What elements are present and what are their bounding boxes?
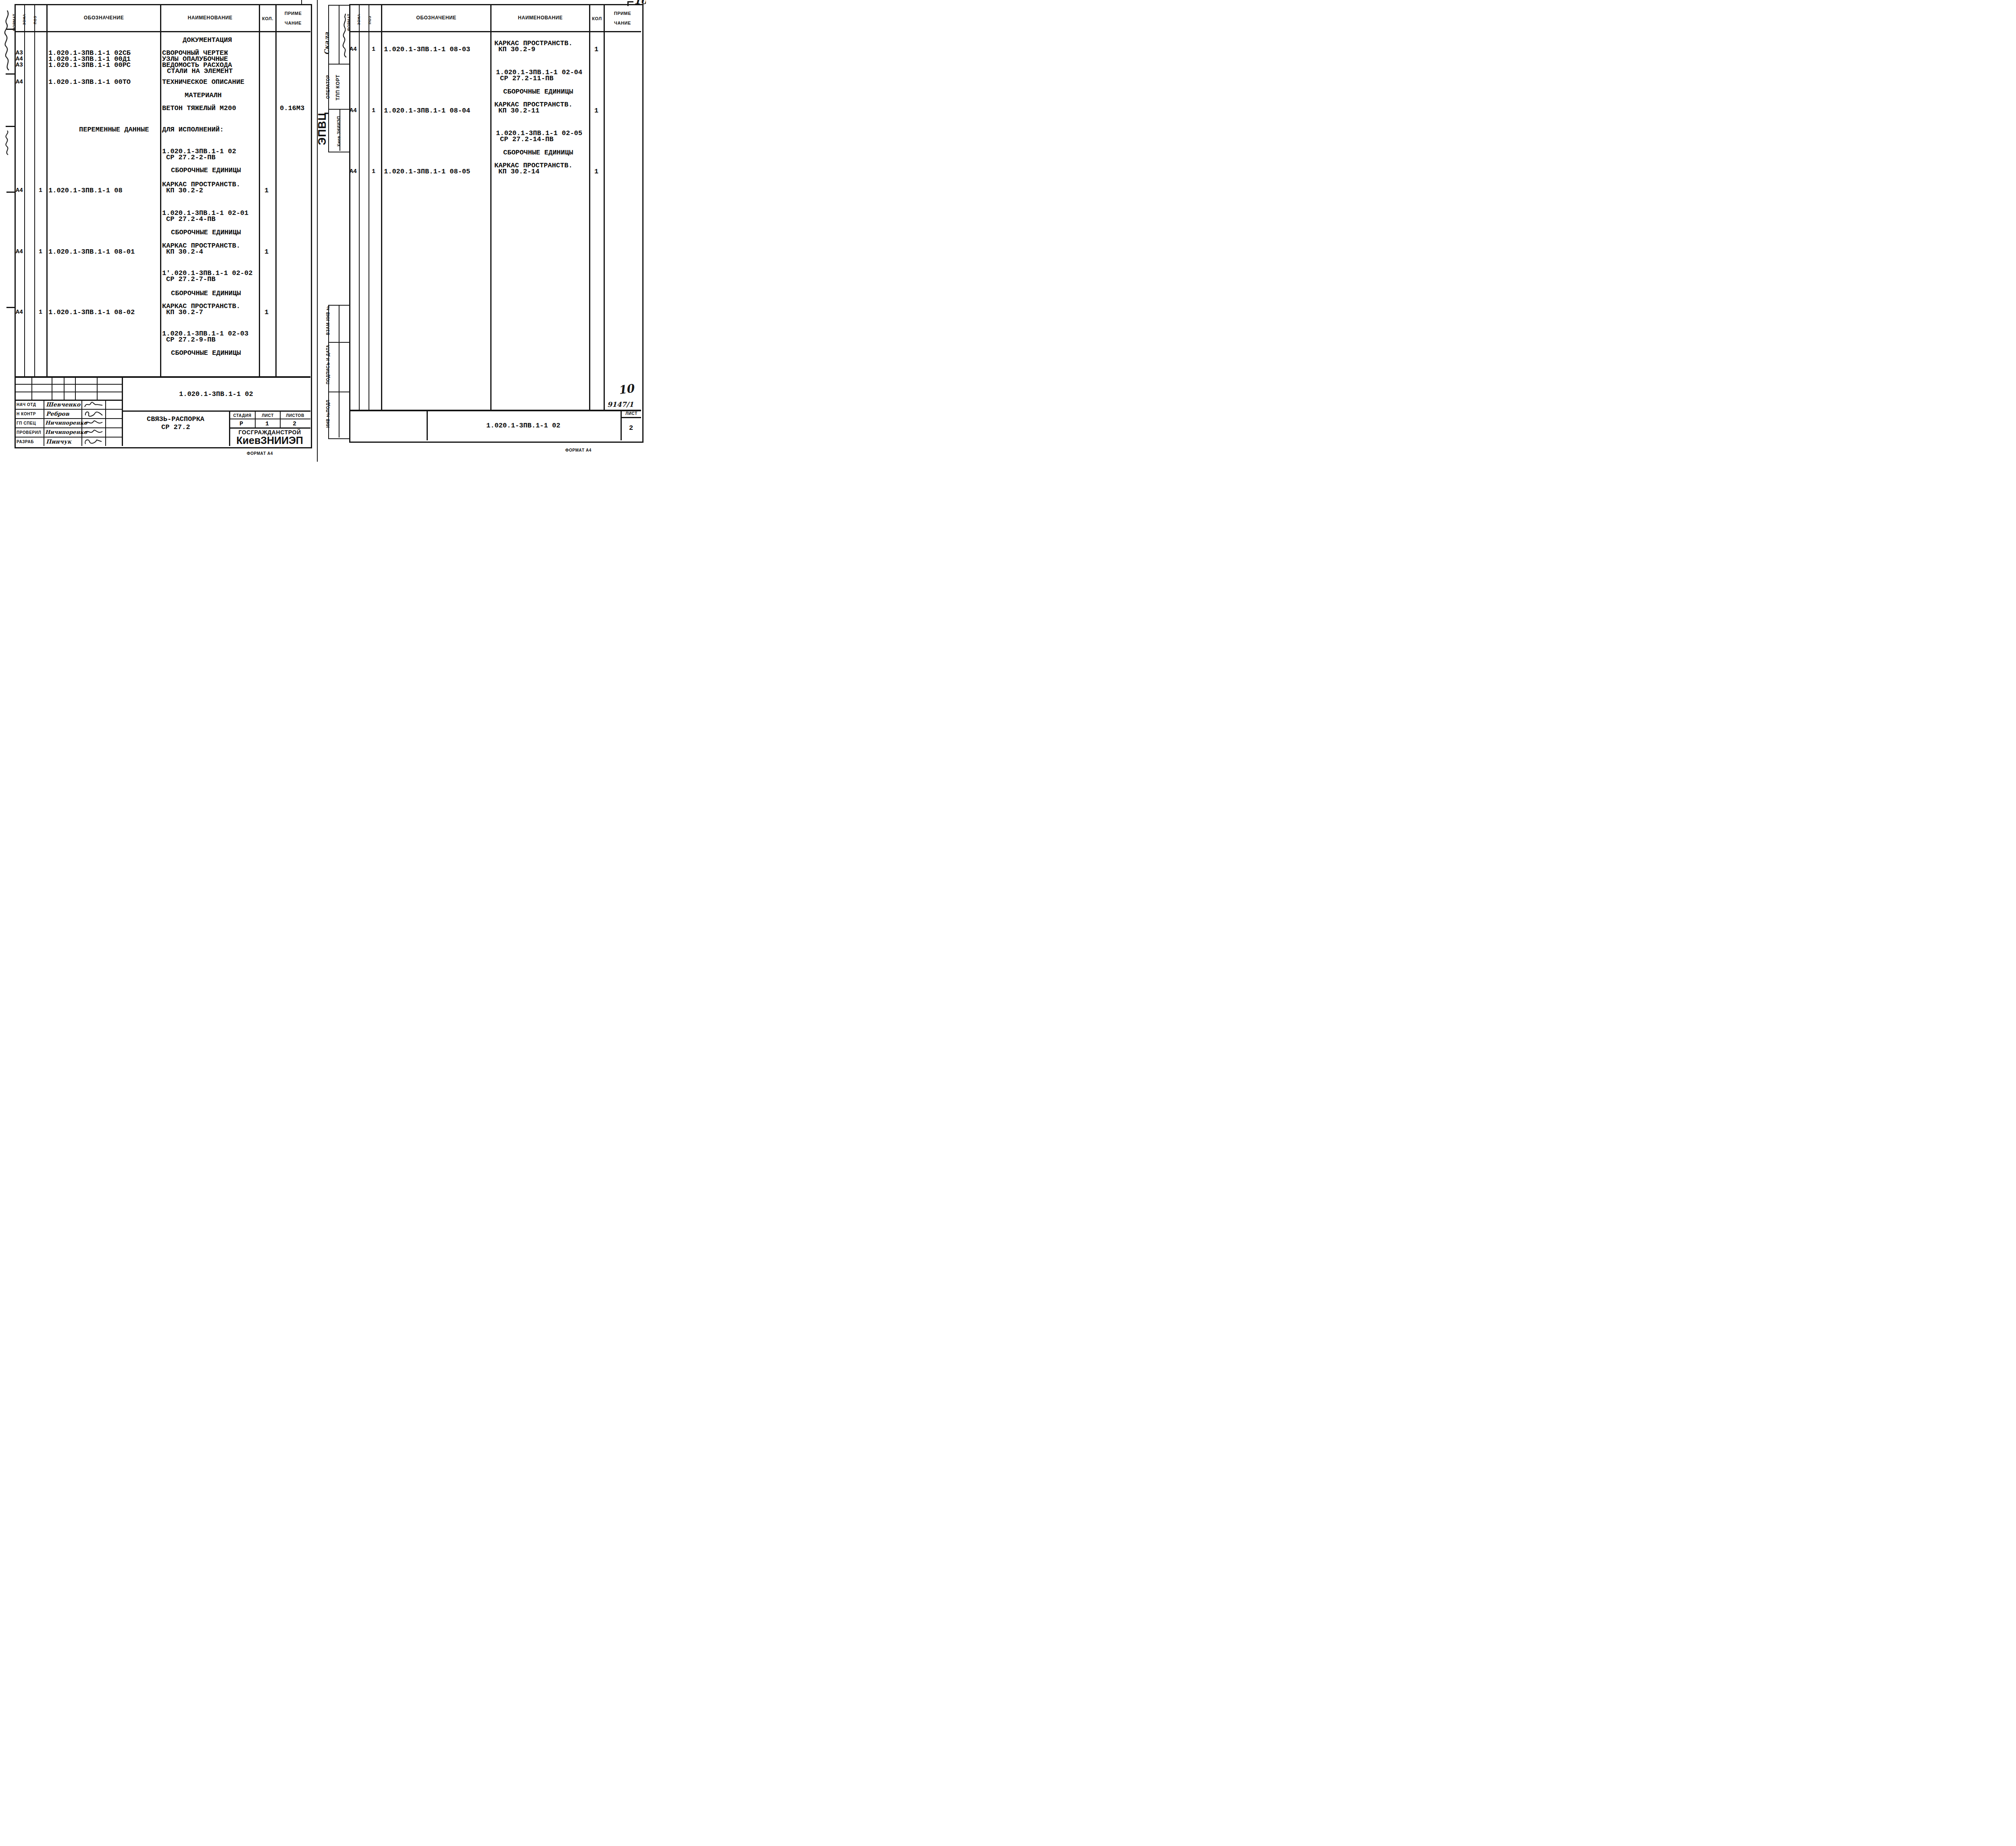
right-col-line — [604, 4, 605, 410]
qty-cell: 1 — [594, 108, 598, 114]
sig-name: Ничипоренко — [45, 420, 87, 426]
pos-cell: 1 — [372, 46, 375, 52]
left-content-bottom-line — [15, 376, 310, 378]
left-col-line — [46, 4, 48, 376]
sig-role: Н КОНТР — [17, 411, 36, 417]
designation-cell: 1.020.1-3ПВ.1-1 08-01 — [48, 249, 135, 255]
name-cell: ДЛЯ ИСПОЛНЕНИЙ: — [162, 127, 224, 133]
signature-stroke — [83, 410, 104, 418]
left-header-name: НАИМЕНОВАНИЕ — [161, 15, 259, 21]
name-cell: КП 30.2-4 — [166, 249, 203, 255]
designation-cell: ПЕРЕМЕННЫЕ ДАННЫЕ — [79, 127, 149, 133]
org-name-small: Киев ЗНИИЭП — [336, 116, 342, 146]
product-name: СВЯЗЬ-РАСПОРКА — [147, 416, 204, 422]
sig-role: ПРОВЕРИЛ — [17, 430, 41, 435]
note-cell: 0.16М3 — [280, 105, 304, 111]
page-fold-line — [317, 0, 318, 462]
format-cell: А4 — [16, 56, 23, 62]
left-header-line — [15, 31, 310, 32]
signature-stroke — [83, 419, 104, 427]
right-header-format: ФОРМАТ — [346, 14, 352, 31]
sheets-label: ЛИСТОВ — [281, 413, 310, 418]
left-format-label: ФОРМАТ А4 — [247, 451, 273, 456]
sidebar-box-inv — [328, 392, 351, 439]
sidebar-divider — [339, 305, 339, 342]
margin-tick — [6, 307, 15, 308]
right-col-line — [490, 4, 492, 410]
sidebar-divider — [339, 392, 339, 438]
right-header-designation: ОБОЗНАЧЕНИЕ — [382, 15, 490, 21]
format-cell: А4 — [350, 169, 357, 175]
qty-cell: 1 — [264, 309, 269, 315]
title-doc-number: 1.020.1-3ПВ.1-1 02 — [179, 391, 253, 397]
left-header-note-1: ПРИМЕ — [277, 11, 310, 16]
name-cell: СР 27.2-9-ПВ — [166, 337, 215, 343]
right-header-qty: КОЛ — [590, 16, 604, 21]
right-header-zone: ЗОНА — [356, 14, 362, 25]
name-cell: КП 30.2-7 — [166, 309, 203, 315]
left-col-line — [160, 4, 161, 376]
right-sheet-number: 2 — [629, 425, 633, 431]
format-cell: А4 — [350, 108, 357, 114]
margin-scribble — [1, 6, 13, 74]
signature-stroke — [83, 438, 104, 446]
tb-line — [52, 376, 52, 400]
left-header-designation: ОБОЗНАЧЕНИЕ — [48, 15, 160, 21]
tb-line — [105, 400, 106, 446]
tb-line — [64, 376, 65, 400]
format-cell: А3 — [16, 62, 23, 68]
order-number-handwritten: 9147/1 — [607, 402, 633, 407]
designation-cell: 1.020.1-3ПВ.1-1 08-04 — [384, 108, 470, 114]
left-col-line — [34, 4, 35, 376]
left-col-line — [259, 4, 260, 376]
name-cell: ДОКУМЕНТАЦИЯ — [183, 37, 232, 43]
right-doc-number: 1.020.1-3ПВ.1-1 02 — [486, 423, 560, 429]
right-header-note-2: ЧАНИЕ — [605, 21, 640, 26]
operator-label: ОПЕРАТОР — [325, 75, 331, 99]
designation-cell: 1.020.1-3ПВ.1-1 08 — [48, 188, 123, 194]
inv-podl-label: ИНВ №ПОДЛ — [325, 400, 331, 428]
sig-name: Ребров — [46, 411, 69, 417]
margin-scribble — [2, 129, 12, 157]
operator-value: ТЛП КОРТ — [335, 75, 341, 100]
name-cell: КП 30.2-14 — [498, 169, 539, 175]
sig-name: Шевченко — [46, 402, 80, 407]
designation-cell: 1.020.1-3ПВ.1-1 08-03 — [384, 46, 470, 52]
name-cell: СР 27.2-7-ПВ — [166, 276, 215, 282]
sig-name: Пинчук — [46, 439, 71, 444]
name-cell: СР 27.2-2-ПВ — [166, 154, 215, 160]
signature-stroke — [83, 428, 104, 436]
designation-cell: 1.020.1-3ПВ.1-1 08-02 — [48, 309, 135, 315]
tb-line — [229, 419, 310, 419]
left-col-line — [275, 4, 277, 376]
margin-tick — [6, 192, 15, 193]
qty-cell: 1 — [594, 169, 598, 175]
left-header-note-2: ЧАНИЕ — [277, 21, 310, 26]
page-number-handwritten: 10 — [617, 383, 634, 396]
name-cell: СР 27.2-4-ПВ — [166, 216, 215, 222]
qty-cell: 1 — [264, 188, 269, 194]
right-header-pos: ПОЗ — [367, 16, 373, 24]
format-cell: А4 — [16, 309, 23, 315]
corner-number-cut: 10 — [634, 0, 646, 6]
tb-line — [15, 384, 122, 385]
tb-line — [97, 376, 98, 400]
sig-role: ГП СПЕЦ — [17, 421, 36, 426]
right-col-line — [381, 4, 382, 410]
tb-line — [122, 410, 310, 412]
name-cell: СБОРОЧНЫЕ ЕДИНИЦЫ — [503, 89, 573, 95]
sidebar-divider — [339, 342, 339, 392]
podpis-data-label: ПОДПИСЬ И ДАТА — [325, 345, 331, 384]
format-cell: А4 — [16, 79, 23, 85]
name-cell: СБОРОЧНЫЕ ЕДИНИЦЫ — [503, 150, 573, 156]
tb-line — [229, 427, 310, 429]
name-cell: ВЕТОН ТЯЖЕЛЫЙ М200 — [162, 105, 236, 111]
sig-name: Ничипоренко — [45, 429, 87, 435]
left-header-zone: ЗОНА — [22, 14, 27, 25]
right-sheet-label: ЛИСТ — [622, 411, 641, 416]
sidebar-box-vzam — [328, 305, 351, 344]
tb-line — [75, 376, 76, 400]
name-cell: СР 27.2-14-ПВ — [500, 136, 554, 142]
scanned-specification-document: ФОРМАТ ЗОНА ПОЗ ОБОЗНАЧЕНИЕ НАИМЕНОВАНИЕ… — [0, 0, 646, 462]
left-header-format: ФОРМАТ — [12, 14, 17, 31]
qty-cell: 1 — [594, 46, 598, 52]
signature-stroke — [83, 400, 104, 408]
sidebar-box-podpis — [328, 342, 351, 393]
name-cell: КП 30.2-2 — [166, 188, 203, 194]
right-tb-line — [427, 410, 428, 440]
stage-label: СТАДИЯ — [230, 413, 255, 418]
org-name-line2: КиевЗНИИЭП — [230, 435, 310, 446]
name-cell: СБОРОЧНЫЕ ЕДИНИЦЫ — [171, 350, 241, 356]
pos-cell: 1 — [372, 169, 375, 175]
org-abbr: ЭПВЦ — [317, 112, 328, 145]
pos-cell: 1 — [372, 108, 375, 114]
name-cell: МАТЕРИАЛН — [185, 92, 222, 98]
vzam-inv-label: ВЗАМ ИНВ № — [325, 306, 331, 335]
right-col-line — [369, 4, 369, 410]
right-col-line — [589, 4, 590, 410]
designation-cell: 1.020.1-3ПВ.1-1 08-05 — [384, 169, 470, 175]
right-content-bottom-line — [349, 410, 641, 411]
name-cell: СР 27.2-11-ПВ — [500, 75, 554, 81]
sig-role: НАЧ ОТД — [17, 402, 36, 407]
name-cell: КП 30.2-11 — [498, 108, 539, 114]
format-cell: А4 — [350, 46, 357, 52]
format-cell: А3 — [16, 50, 23, 56]
sheet-label: ЛИСТ — [256, 413, 280, 418]
pos-cell: 1 — [39, 188, 42, 194]
format-cell: А4 — [16, 188, 23, 194]
sidebar-divider — [339, 5, 339, 64]
tb-line — [31, 376, 32, 400]
right-header-line — [349, 31, 641, 32]
format-cell: А4 — [16, 249, 23, 255]
pos-cell: 1 — [39, 249, 42, 255]
right-header-note-1: ПРИМЕ — [605, 11, 640, 16]
name-cell: СБОРОЧНЫЕ ЕДИНИЦЫ — [171, 290, 241, 296]
sheets-value: 2 — [293, 421, 296, 427]
left-header-pos: ПОЗ — [33, 16, 38, 24]
left-header-qty: КОЛ. — [260, 16, 275, 21]
sheet-value: 1 — [265, 421, 269, 427]
right-header-name: НАИМЕНОВАНИЕ — [492, 15, 589, 21]
right-col-line — [359, 4, 360, 410]
left-col-line — [24, 4, 25, 376]
sig-role: РАЗРАБ — [17, 439, 34, 444]
right-tb-line — [621, 417, 641, 418]
tb-line — [44, 400, 44, 446]
name-cell: КП 30.2-9 — [498, 46, 535, 52]
name-cell: СБОРОЧНЫЕ ЕДИНИЦЫ — [171, 229, 241, 235]
tb-line — [15, 392, 122, 392]
right-format-label: ФОРМАТ А4 — [565, 448, 591, 453]
product-code: СР 27.2 — [161, 424, 190, 430]
name-cell: СБОРОЧНЫЕ ЕДИНИЦЫ — [171, 167, 241, 173]
name-cell: ТЕХНИЧЕСКОЕ ОПИСАНИЕ — [162, 79, 244, 85]
left-sheet-frame — [15, 4, 312, 448]
name-cell: СТАЛИ НА ЭЛЕМЕНТ — [167, 68, 233, 74]
designation-cell: 1.020.1-3ПВ.1-1 00ТО — [48, 79, 131, 85]
corner-bracket-mark — [627, 1, 633, 6]
stage-value: Р — [240, 421, 243, 427]
pos-cell: 1 — [39, 309, 42, 315]
sidebar-note-handwritten: Скала — [324, 32, 330, 55]
designation-cell: 1.020.1-3ПВ.1-1 00РС — [48, 62, 131, 68]
qty-cell: 1 — [264, 249, 269, 255]
